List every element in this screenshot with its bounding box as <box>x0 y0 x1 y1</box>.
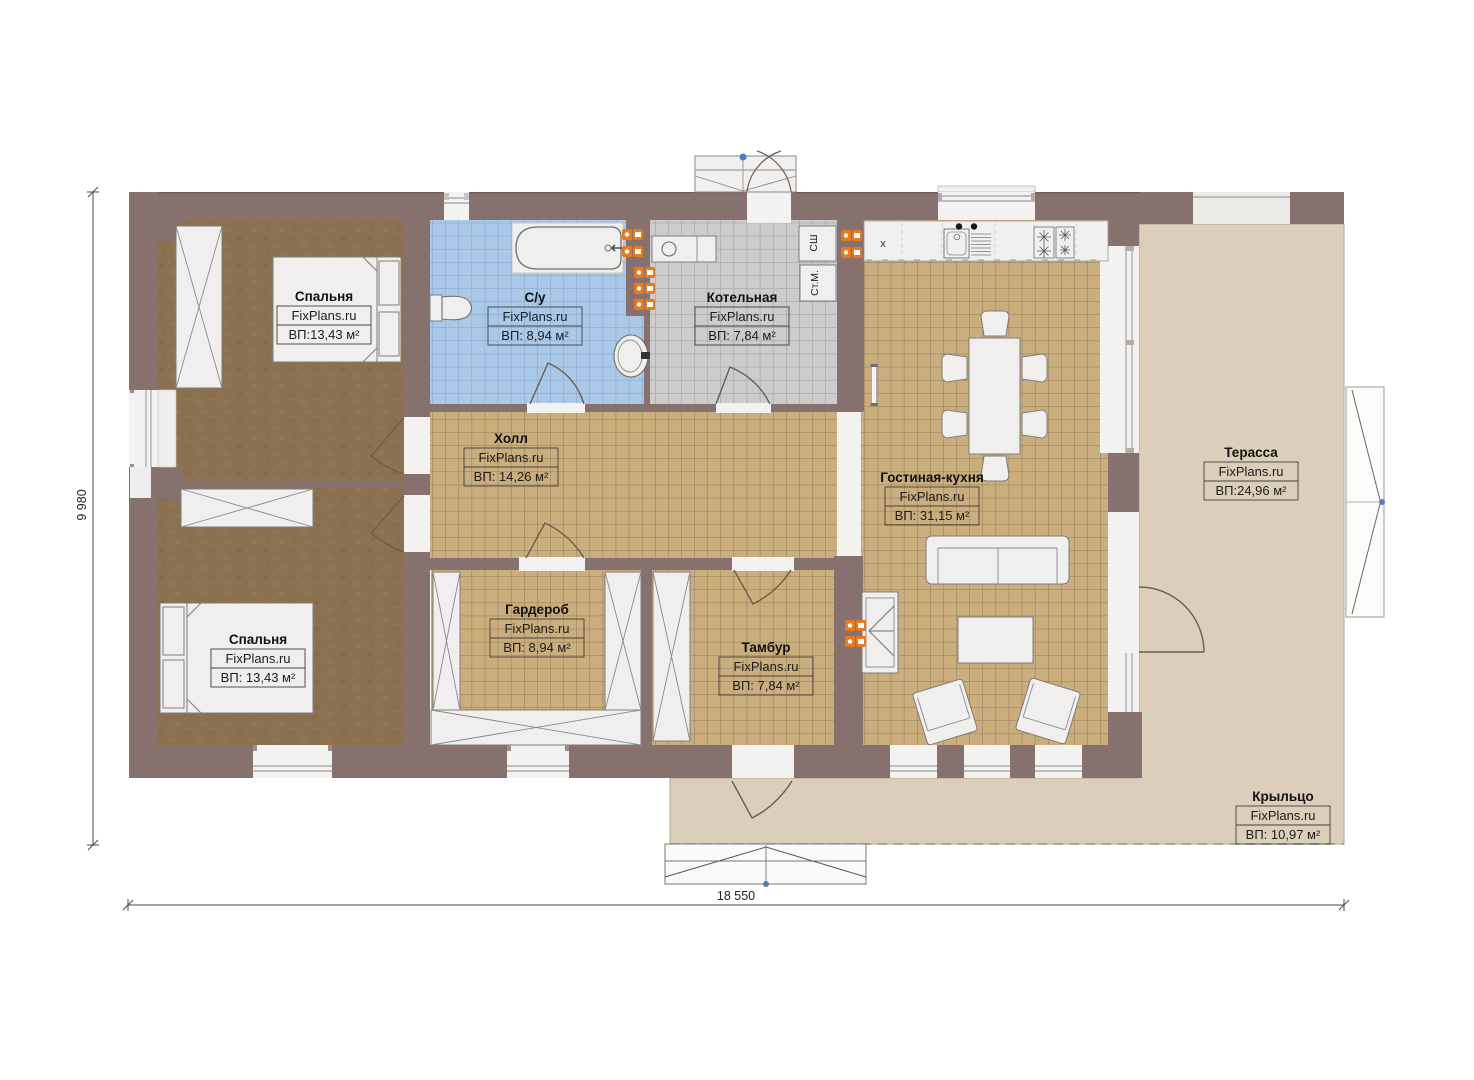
svg-text:Гардероб: Гардероб <box>505 602 569 617</box>
svg-text:FixPlans.ru: FixPlans.ru <box>225 651 290 666</box>
svg-text:FixPlans.ru: FixPlans.ru <box>478 450 543 465</box>
svg-text:FixPlans.ru: FixPlans.ru <box>1250 808 1315 823</box>
svg-text:Спальня: Спальня <box>229 632 287 647</box>
svg-text:ВП: 31,15 м²: ВП: 31,15 м² <box>895 508 970 523</box>
svg-text:ВП: 7,84 м²: ВП: 7,84 м² <box>708 328 776 343</box>
svg-text:СШ: СШ <box>808 234 820 251</box>
svg-text:Терасса: Терасса <box>1224 445 1278 460</box>
svg-text:ВП: 10,97 м²: ВП: 10,97 м² <box>1246 827 1321 842</box>
svg-text:ВП: 14,26 м²: ВП: 14,26 м² <box>474 469 549 484</box>
svg-text:Гостиная-кухня: Гостиная-кухня <box>880 470 983 485</box>
svg-text:FixPlans.ru: FixPlans.ru <box>502 309 567 324</box>
svg-text:Ст.М.: Ст.М. <box>809 270 821 296</box>
svg-text:x: x <box>880 238 886 250</box>
svg-text:FixPlans.ru: FixPlans.ru <box>899 489 964 504</box>
svg-text:ВП:24,96 м²: ВП:24,96 м² <box>1215 483 1287 498</box>
svg-text:FixPlans.ru: FixPlans.ru <box>709 309 774 324</box>
svg-text:FixPlans.ru: FixPlans.ru <box>504 621 569 636</box>
svg-text:Холл: Холл <box>494 431 528 446</box>
svg-text:9 980: 9 980 <box>75 489 89 520</box>
svg-text:ВП: 8,94 м²: ВП: 8,94 м² <box>503 640 571 655</box>
svg-text:Тамбур: Тамбур <box>742 640 791 655</box>
svg-text:ВП: 13,43 м²: ВП: 13,43 м² <box>221 670 296 685</box>
svg-text:FixPlans.ru: FixPlans.ru <box>733 659 798 674</box>
svg-text:Крыльцо: Крыльцо <box>1252 789 1313 804</box>
svg-text:С/у: С/у <box>524 290 546 305</box>
svg-text:FixPlans.ru: FixPlans.ru <box>291 308 356 323</box>
svg-text:ВП:13,43 м²: ВП:13,43 м² <box>288 327 360 342</box>
svg-text:18 550: 18 550 <box>717 889 755 903</box>
svg-text:FixPlans.ru: FixPlans.ru <box>1218 464 1283 479</box>
svg-text:ВП: 7,84 м²: ВП: 7,84 м² <box>732 678 800 693</box>
svg-text:Спальня: Спальня <box>295 289 353 304</box>
svg-text:ВП: 8,94 м²: ВП: 8,94 м² <box>501 328 569 343</box>
svg-text:Котельная: Котельная <box>707 290 778 305</box>
